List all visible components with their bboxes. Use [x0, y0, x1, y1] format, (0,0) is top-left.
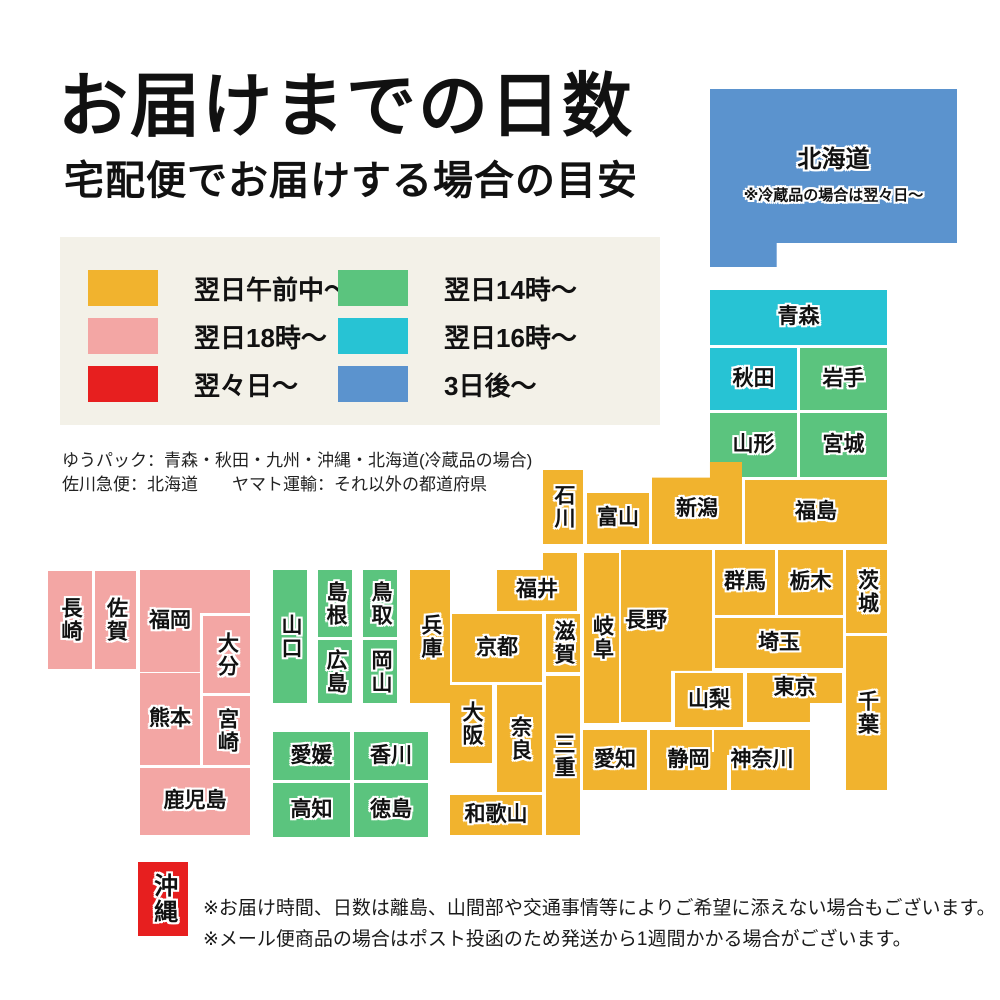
pref-toyama: 富山: [587, 493, 649, 544]
pref-miyagi: 宮城: [800, 413, 887, 477]
pref-label-iwate: 岩手: [823, 368, 865, 390]
pref-ehime: 愛媛: [273, 732, 350, 780]
pref-label-hokkaido: 北海道: [710, 147, 957, 172]
legend-swatch-green: [338, 270, 408, 306]
pref-ishikawa: 石川: [543, 470, 583, 544]
pref-labelbox-fukui: 福井: [497, 570, 577, 611]
carrier-note-line: 佐川急便：北海道 ヤマト運輸：それ以外の都道府県: [62, 473, 532, 497]
pref-label-okayama: 岡山: [369, 649, 391, 695]
hokkaido-refrigerated-note: ※冷蔵品の場合は翌々日〜: [710, 188, 957, 204]
pref-label-yamaguchi: 山口: [279, 614, 301, 660]
pref-label-fukuoka: 福岡: [149, 610, 191, 632]
pref-saga: 佐賀: [95, 571, 136, 669]
pref-label-niigata: 新潟: [676, 498, 718, 520]
pref-label-wakayama: 和歌山: [465, 804, 528, 826]
legend-label: 翌々日〜: [194, 366, 298, 403]
pref-label-yamagata: 山形: [733, 434, 775, 456]
pref-akita: 秋田: [710, 348, 797, 410]
legend-item-next-18: 翌日18時〜: [88, 318, 327, 354]
legend-item-next-next-day: 翌々日〜: [88, 366, 298, 402]
pref-yamaguchi: 山口: [273, 570, 307, 703]
pref-label-ishikawa: 石川: [552, 484, 574, 530]
pref-label-nagano: 長野: [625, 610, 667, 632]
footer-note-line: ※お届け時間、日数は離島、山間部や交通事情等によりご希望に添えない場合もございま…: [203, 893, 996, 924]
carrier-note-line: ゆうパック：青森・秋田・九州・沖縄・北海道(冷蔵品の場合): [62, 449, 532, 473]
legend-swatch-cyan: [338, 318, 408, 354]
pref-okinawa: 沖縄: [138, 862, 188, 936]
pref-miyazaki: 宮崎: [203, 696, 250, 765]
pref-iwate: 岩手: [800, 348, 887, 410]
pref-label-aomori: 青森: [778, 306, 820, 328]
pref-label-kanagawa: 神奈川: [731, 749, 794, 771]
pref-fukui: 福井: [497, 553, 577, 611]
legend-label: 翌日16時〜: [444, 318, 577, 355]
legend-label: 3日後〜: [444, 366, 536, 403]
pref-label-mie: 三重: [552, 733, 574, 779]
pref-label-kagawa: 香川: [370, 745, 412, 767]
pref-label-nara: 奈良: [508, 716, 530, 762]
pref-label-kagoshima: 鹿児島: [164, 790, 227, 812]
pref-label-ibaraki: 茨城: [855, 569, 877, 615]
page-subtitle: 宅配便でお届けする場合の目安: [64, 148, 638, 206]
pref-labelbox-nagano: 長野: [621, 596, 671, 646]
pref-kagawa: 香川: [354, 732, 428, 780]
legend-item-next-morning: 翌日午前中〜: [88, 270, 350, 306]
pref-hokkaido: 北海道※冷蔵品の場合は翌々日〜: [710, 89, 957, 267]
pref-label-saitama: 埼玉: [758, 632, 800, 654]
pref-saitama: 埼玉: [715, 618, 843, 668]
footer-note-line: ※メール便商品の場合はポスト投函のため発送から1週間かかる場合がございます。: [203, 924, 996, 955]
pref-kanagawa: 神奈川: [714, 730, 810, 790]
footer-notes: ※お届け時間、日数は離島、山間部や交通事情等によりご希望に添えない場合もございま…: [203, 893, 996, 955]
legend-label: 翌日午前中〜: [194, 270, 350, 307]
pref-label-akita: 秋田: [733, 368, 775, 390]
pref-label-kumamoto: 熊本: [149, 708, 191, 730]
pref-label-tokyo: 東京: [774, 677, 816, 699]
legend-label: 翌日18時〜: [194, 318, 327, 355]
pref-label-shimane: 島根: [324, 581, 346, 627]
pref-tokushima: 徳島: [354, 783, 428, 837]
pref-label-osaka: 大阪: [460, 701, 482, 747]
pref-label-toyama: 富山: [597, 507, 639, 529]
pref-label-hyogo: 兵庫: [419, 614, 441, 660]
pref-label-gifu: 岐阜: [590, 615, 612, 661]
pref-aomori: 青森: [710, 290, 887, 345]
pref-label-nagasaki: 長崎: [59, 597, 81, 643]
pref-hiroshima: 広島: [318, 640, 352, 703]
legend-item-next-14: 翌日14時〜: [338, 270, 577, 306]
pref-label-hiroshima: 広島: [324, 649, 346, 695]
pref-aichi: 愛知: [583, 730, 647, 790]
pref-label-tottori: 鳥取: [369, 581, 391, 627]
legend-item-three-days: 3日後〜: [338, 366, 536, 402]
pref-wakayama: 和歌山: [450, 795, 542, 835]
pref-tochigi: 栃木: [778, 550, 843, 615]
pref-labelbox-fukuoka: 福岡: [140, 570, 200, 672]
pref-nagasaki: 長崎: [48, 571, 92, 669]
pref-shimane: 島根: [318, 570, 352, 637]
pref-osaka: 大阪: [450, 685, 492, 763]
pref-mie: 三重: [546, 676, 580, 835]
pref-chiba: 千葉: [846, 636, 887, 790]
pref-yamanashi: 山梨: [675, 673, 743, 727]
legend-item-next-16: 翌日16時〜: [338, 318, 577, 354]
pref-label-okinawa: 沖縄: [150, 873, 175, 925]
pref-kyoto: 京都: [452, 614, 542, 682]
pref-kagoshima: 鹿児島: [140, 768, 250, 835]
pref-ibaraki: 茨城: [846, 550, 887, 633]
carrier-notes: ゆうパック：青森・秋田・九州・沖縄・北海道(冷蔵品の場合) 佐川急便：北海道 ヤ…: [62, 449, 532, 497]
legend-swatch-gold: [88, 270, 158, 306]
pref-fukushima: 福島: [745, 480, 887, 544]
pref-hyogo: 兵庫: [410, 570, 450, 703]
delivery-days-infographic: お届けまでの日数 宅配便でお届けする場合の目安 翌日午前中〜 翌日18時〜 翌々…: [0, 0, 1000, 1000]
pref-label-fukushima: 福島: [795, 501, 837, 523]
legend-label: 翌日14時〜: [444, 270, 577, 307]
pref-label-miyazaki: 宮崎: [215, 708, 237, 754]
pref-label-yamanashi: 山梨: [688, 689, 730, 711]
pref-label-shizuoka: 静岡: [668, 749, 710, 771]
legend-swatch-blue: [338, 366, 408, 402]
pref-label-shiga: 滋賀: [552, 620, 574, 666]
legend-panel: 翌日午前中〜 翌日18時〜 翌々日〜 翌日14時〜 翌日16時〜 3日後〜: [60, 237, 660, 425]
pref-label-gunma: 群馬: [724, 571, 766, 593]
pref-label-chiba: 千葉: [855, 690, 877, 736]
pref-label-aichi: 愛知: [594, 749, 636, 771]
pref-shiga: 滋賀: [546, 614, 580, 672]
pref-gunma: 群馬: [715, 550, 775, 615]
pref-labelbox-tokyo: 東京: [747, 673, 842, 704]
pref-label-kochi: 高知: [291, 799, 333, 821]
pref-gifu: 岐阜: [584, 553, 619, 723]
page-title: お届けまでの日数: [58, 50, 634, 151]
legend-swatch-red: [88, 366, 158, 402]
legend-swatch-pink: [88, 318, 158, 354]
pref-okayama: 岡山: [363, 640, 397, 703]
pref-kumamoto: 熊本: [140, 673, 200, 765]
pref-label-oita: 大分: [215, 632, 237, 678]
pref-label-ehime: 愛媛: [291, 745, 333, 767]
pref-label-miyagi: 宮城: [823, 434, 865, 456]
pref-tokyo: 東京: [747, 673, 842, 722]
pref-label-kyoto: 京都: [476, 637, 518, 659]
pref-label-fukui: 福井: [516, 579, 558, 601]
pref-nara: 奈良: [497, 685, 542, 792]
pref-niigata: 新潟: [652, 462, 742, 544]
pref-kochi: 高知: [273, 783, 350, 837]
pref-label-tokushima: 徳島: [370, 799, 412, 821]
pref-label-saga: 佐賀: [104, 597, 126, 643]
pref-tottori: 鳥取: [363, 570, 397, 637]
pref-label-tochigi: 栃木: [790, 571, 832, 593]
pref-oita: 大分: [203, 616, 250, 693]
